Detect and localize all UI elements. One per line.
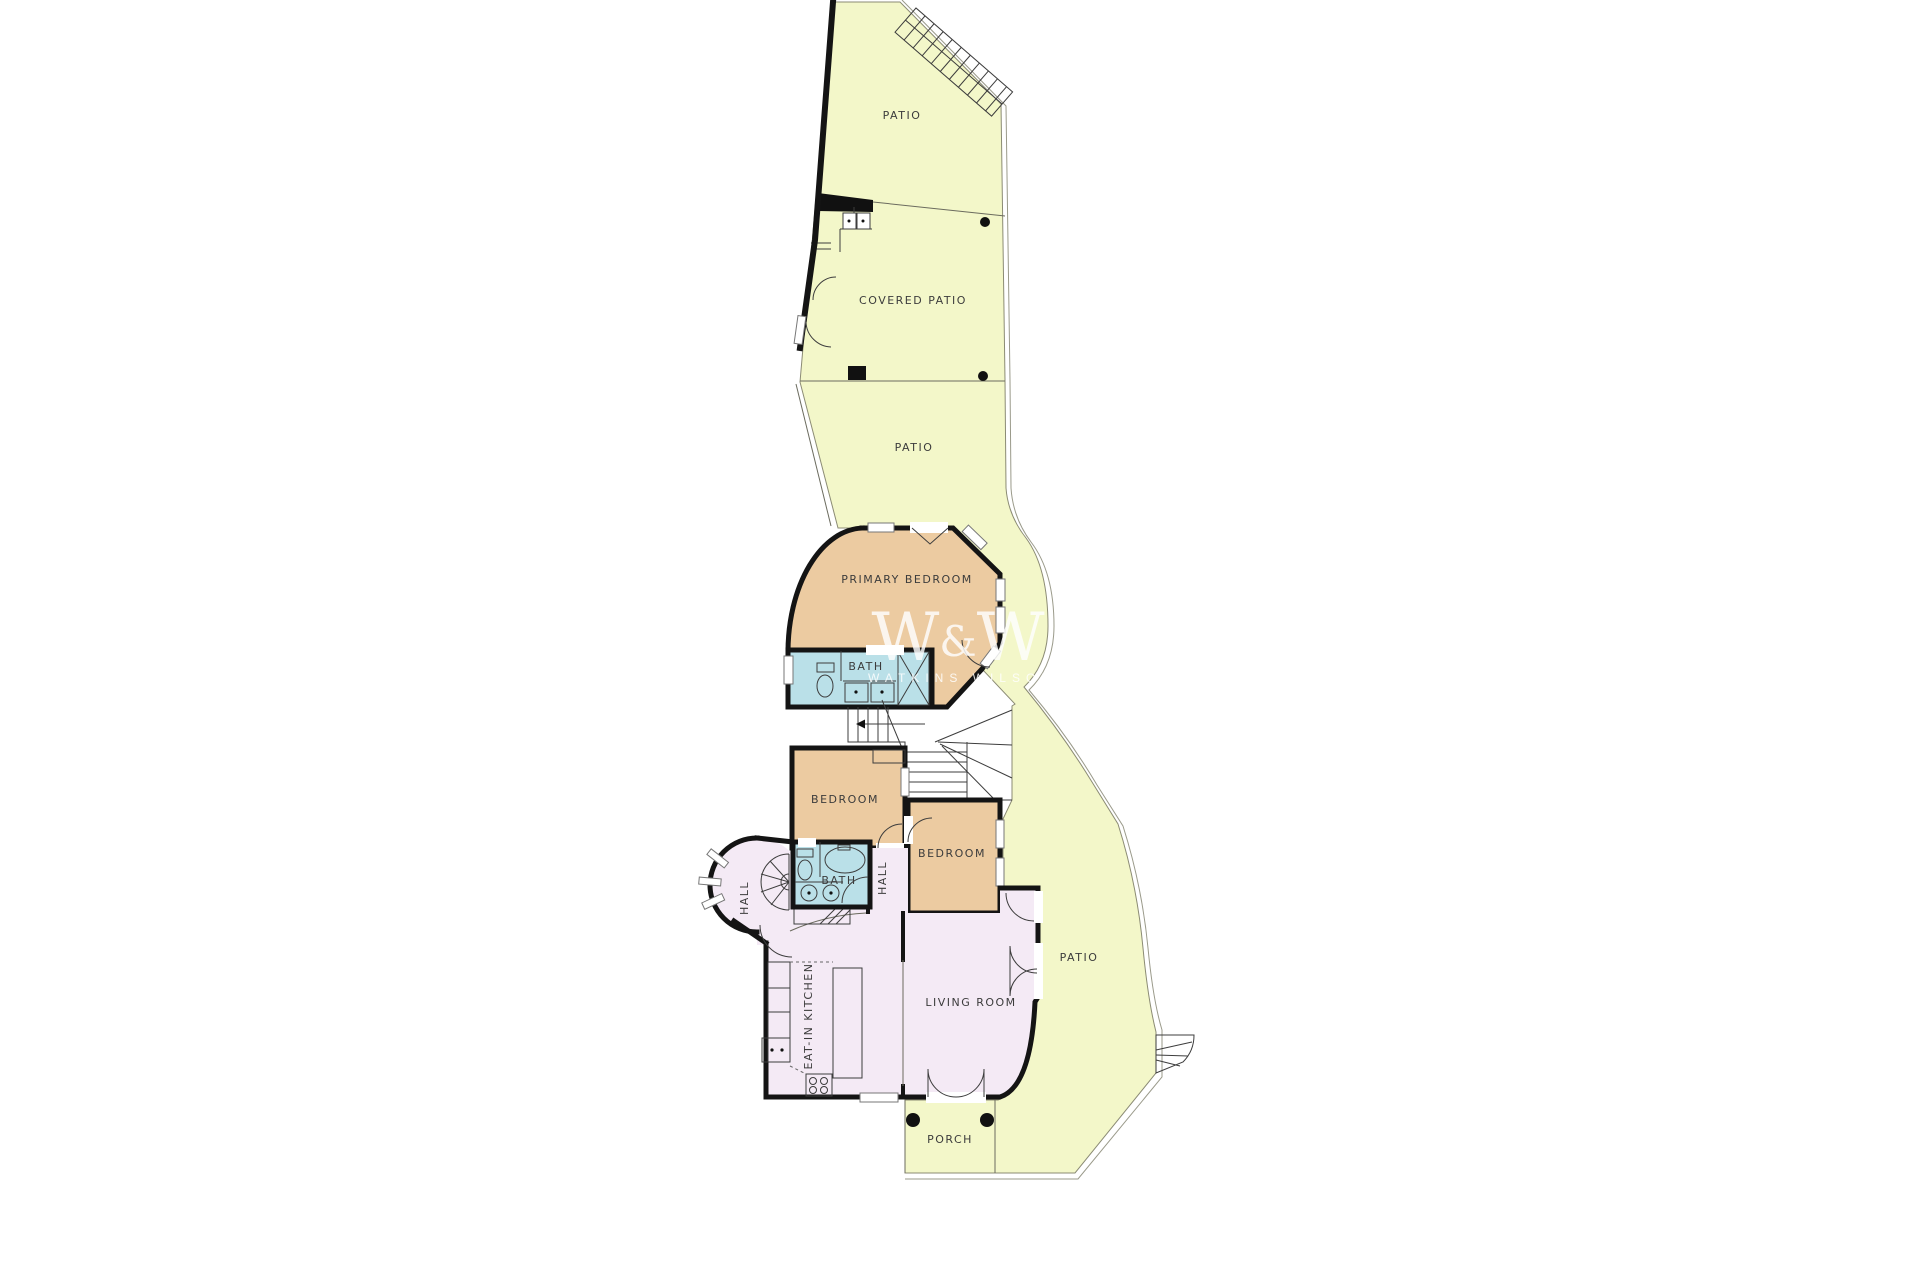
window: [901, 768, 909, 796]
window: [860, 1093, 898, 1102]
bath-2: [793, 838, 870, 907]
window: [996, 579, 1005, 601]
label-bath-2: BATH: [821, 874, 856, 887]
label-primary-bedroom: PRIMARY BEDROOM: [841, 573, 973, 586]
post-dot: [980, 217, 990, 227]
label-hall-center: HALL: [876, 861, 889, 895]
watermark-w2: W: [977, 599, 1045, 676]
label-hall-round: HALL: [738, 881, 751, 915]
floorplan-page: PATIO COVERED PATIO PATIO PRIMARY BEDROO…: [0, 0, 1920, 1280]
window: [996, 820, 1004, 848]
window: [868, 523, 894, 532]
window: [784, 656, 793, 684]
label-patio-mid: PATIO: [895, 441, 934, 454]
floorplan-canvas: PATIO COVERED PATIO PATIO PRIMARY BEDROO…: [0, 0, 1920, 1280]
watermark-brand: WATKINS WILSON: [868, 671, 1056, 685]
label-patio-top: PATIO: [883, 109, 922, 122]
porch-column: [980, 1113, 994, 1127]
column-block: [848, 366, 866, 380]
label-patio-right: PATIO: [1060, 951, 1099, 964]
label-bedroom-1: BEDROOM: [811, 793, 879, 806]
label-kitchen: EAT-IN KITCHEN: [802, 963, 815, 1070]
porch-column: [906, 1113, 920, 1127]
label-living-room: LIVING ROOM: [925, 996, 1016, 1009]
window: [699, 877, 722, 886]
watermark-amp: &: [939, 617, 976, 666]
label-covered-patio: COVERED PATIO: [859, 294, 967, 307]
post-dot: [978, 371, 988, 381]
label-porch: PORCH: [927, 1133, 973, 1146]
label-bedroom-2: BEDROOM: [918, 847, 986, 860]
watermark-w1: W: [871, 599, 939, 676]
window: [996, 858, 1004, 886]
